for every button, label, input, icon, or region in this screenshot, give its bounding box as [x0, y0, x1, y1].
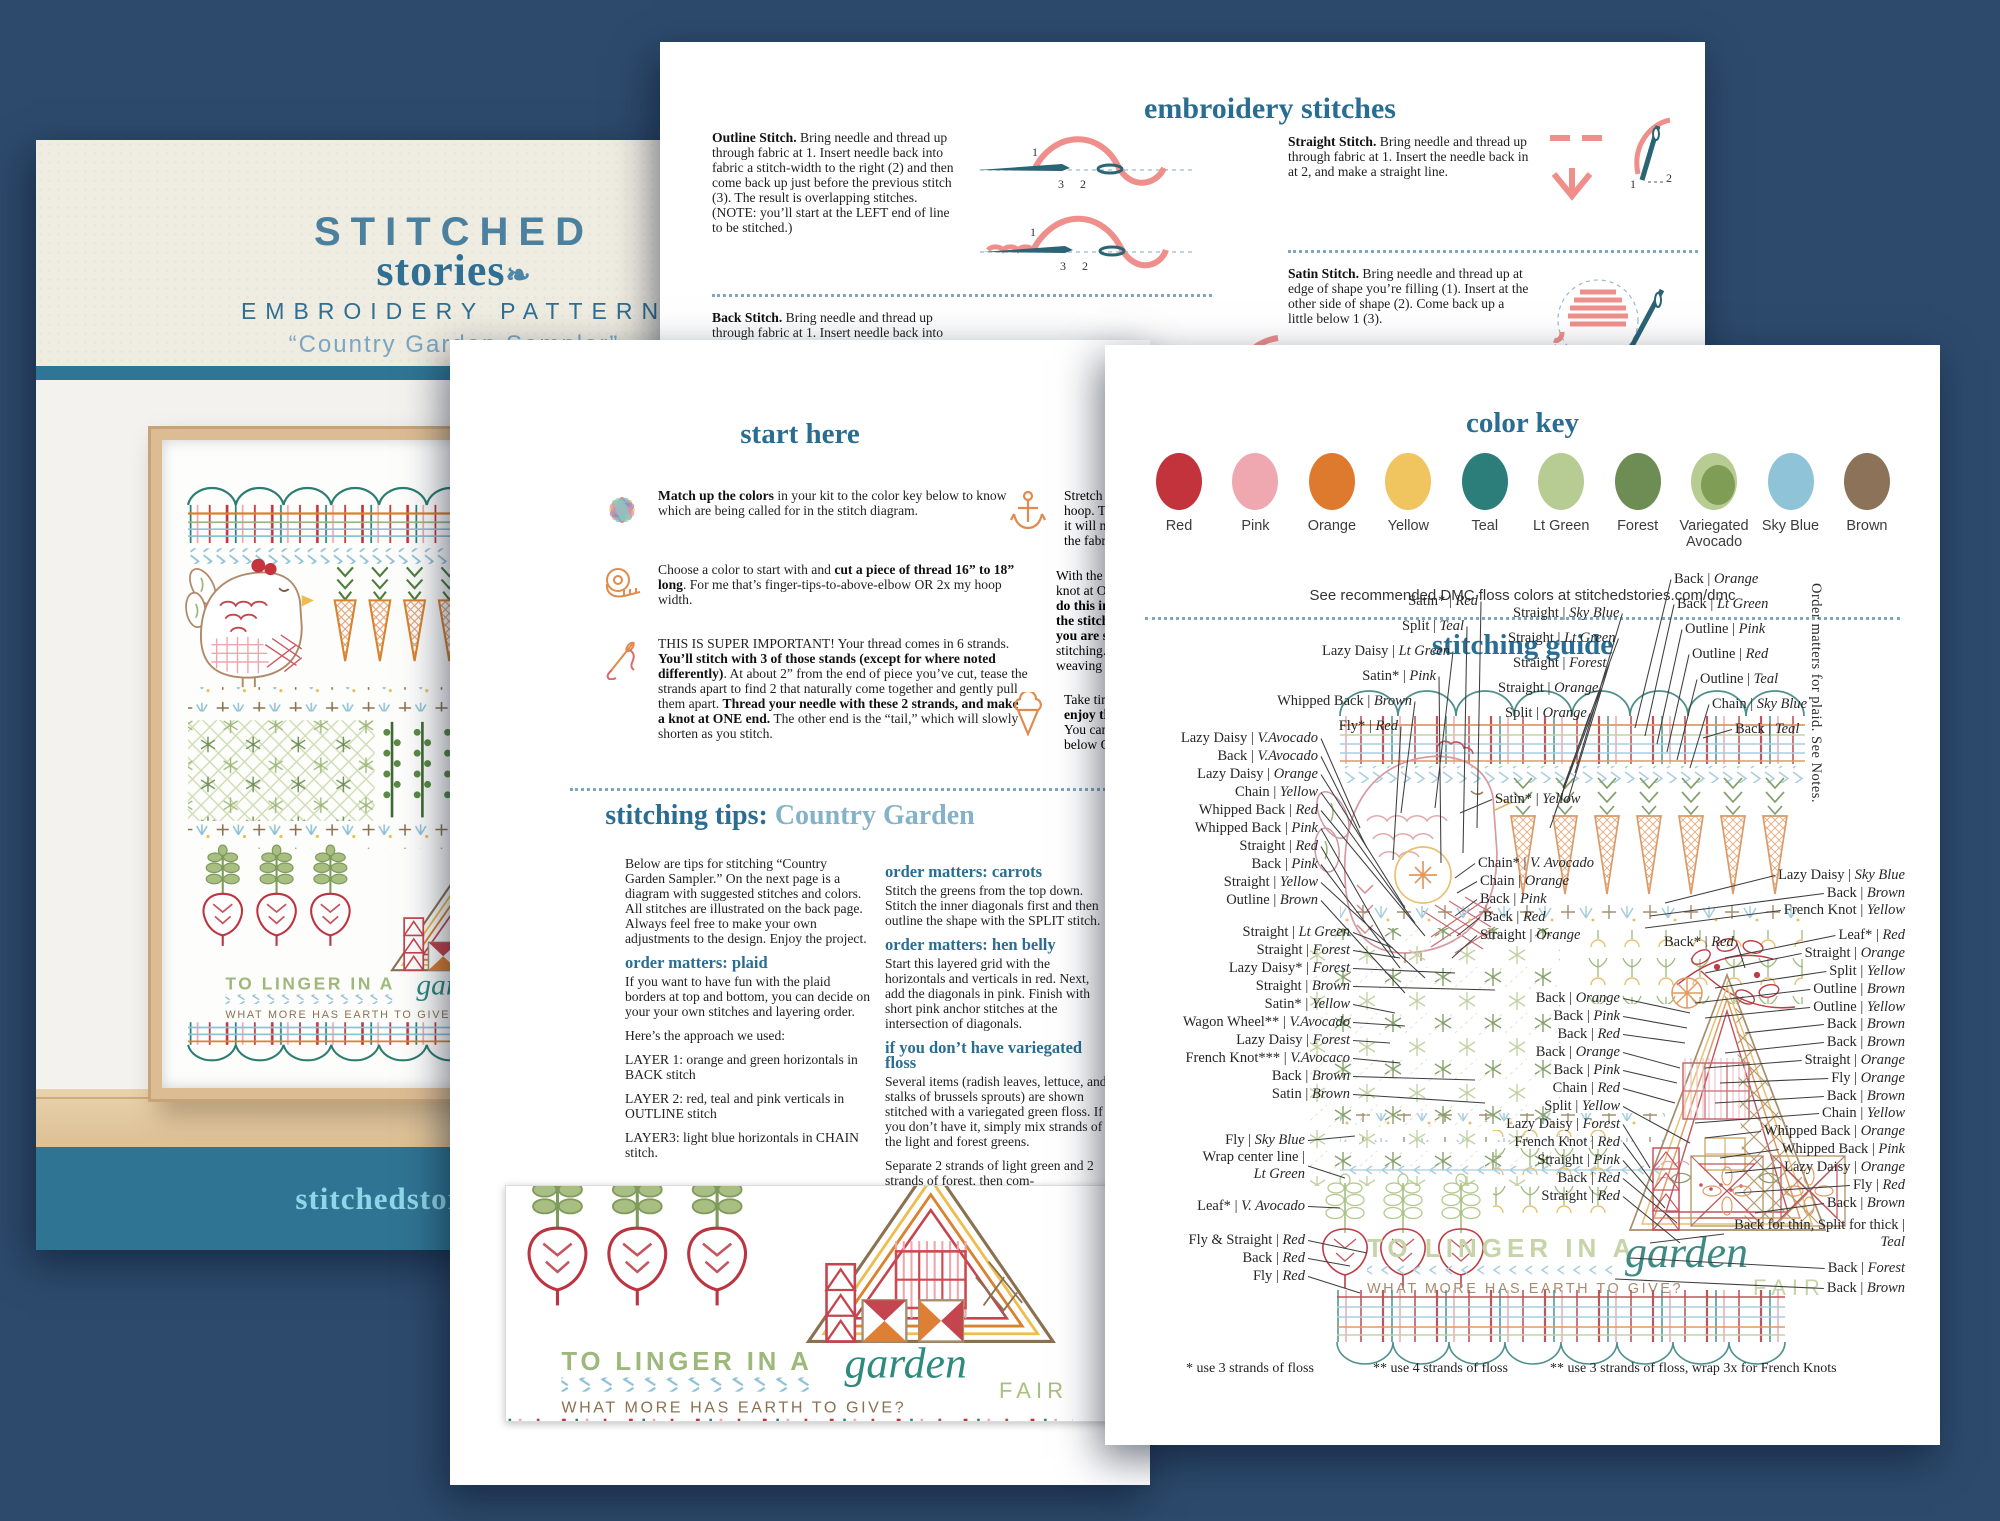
stitch-label: Whipped Back | Orange [1764, 1123, 1905, 1140]
tips-paragraph: Start this layered grid with the horizon… [885, 956, 1109, 1031]
stitch-label: Lazy Daisy | Lt Green [1322, 643, 1450, 660]
stitch-label: Outline | Yellow [1813, 999, 1905, 1016]
stitch-label: Straight | Orange [1805, 945, 1905, 962]
stitch-label: Back | Pink [1251, 856, 1318, 873]
detail-photo [505, 1185, 1112, 1422]
stitch-label: Whipped Back | Red [1199, 802, 1318, 819]
stitch-label: Back for thin, Split for thick | Teal [1727, 1217, 1905, 1251]
stitch-label: Back | Red [1558, 1170, 1621, 1187]
stitch-label: Outline | Brown [1813, 981, 1905, 998]
stitch-label: Wrap center line | Lt Green [1193, 1149, 1305, 1183]
satin-stitch-text: Satin Stitch. Bring needle and thread up… [1288, 266, 1530, 326]
outline-stitch-diagram: 132 132 [970, 124, 1205, 304]
stitch-label: Chain | Sky Blue [1712, 696, 1807, 713]
stitch-label: Wagon Wheel** | V.Avocado [1183, 1014, 1350, 1031]
stitch-label: Straight | Lt Green [1243, 924, 1351, 941]
stitch-label: Straight | Red [1239, 838, 1318, 855]
stitch-label: Lazy Daisy | V.Avocado [1181, 730, 1318, 747]
stitch-label: Back | Lt Green [1677, 596, 1768, 613]
stitch-label: Lazy Daisy | Forest [1236, 1032, 1350, 1049]
stitch-label: Fly | Sky Blue [1225, 1132, 1305, 1149]
start-item-text: THIS IS SUPER IMPORTANT! Your thread com… [658, 636, 1028, 741]
stitch-label: Back | Red [1243, 1250, 1306, 1267]
tips-paragraph: Here’s the approach we used: [625, 1028, 870, 1043]
tips-paragraph: LAYER3: light blue horizontals in CHAIN … [625, 1130, 870, 1160]
product-image: STITCHED stories❧ EMBROIDERY PATTERN “Co… [0, 0, 2000, 1521]
svg-text:3: 3 [1058, 177, 1064, 191]
stitch-label: Leaf* | Red [1838, 927, 1905, 944]
start-here-title: start here [600, 418, 1000, 451]
stitch-label: Back | Orange [1536, 1044, 1620, 1061]
stitch-label: Split | Teal [1402, 618, 1464, 635]
divider [1288, 250, 1698, 253]
stitch-label: Straight | Pink [1537, 1152, 1620, 1169]
footnotes: * use 3 strands of floss** use 4 strands… [1105, 1361, 1940, 1385]
divider [712, 294, 1212, 297]
stitch-label: Back | Brown [1272, 1068, 1350, 1085]
detail-photo-image [506, 1186, 1111, 1421]
start-item-text: Match up the colors in your kit to the c… [658, 488, 1018, 532]
start-item-text: Choose a color to start with and cut a p… [658, 562, 1018, 607]
stitch-label: Outline | Pink [1685, 621, 1765, 638]
stitch-label: Satin* | Pink [1362, 668, 1436, 685]
stitch-label: Whipped Back | Pink [1782, 1141, 1905, 1158]
stitch-label: Straight | Yellow [1224, 874, 1318, 891]
tips-paragraph: LAYER 2: red, teal and pink verticals in… [625, 1091, 870, 1121]
stitch-label: Fly* | Red [1339, 718, 1398, 735]
stitching-tips-title: stitching tips: Country Garden [450, 800, 1130, 832]
stitch-label: Back | Red [1558, 1026, 1621, 1043]
tape-measure-icon [600, 562, 644, 606]
stitch-label: Straight | Lt Green [1508, 630, 1616, 647]
straight-stitch-diagram: 12 [1542, 116, 1692, 236]
stitch-label: Back* | Red [1664, 934, 1734, 951]
stitch-label: Chain | Yellow [1822, 1105, 1905, 1122]
stitch-label: Back | Pink [1553, 1008, 1620, 1025]
cover-header: STITCHED stories❧ EMBROIDERY PATTERN “Co… [36, 140, 696, 366]
stitch-label: Satin* | Red [1408, 593, 1478, 610]
stitch-label: Outline | Red [1692, 646, 1768, 663]
ice-cream-icon [1006, 692, 1050, 736]
stitch-label: Lazy Daisy | Orange [1784, 1159, 1905, 1176]
stitch-label: Satin | Brown [1272, 1086, 1350, 1103]
stitch-label: Fly | Red [1853, 1177, 1905, 1194]
stitch-label: Straight | Red [1541, 1188, 1620, 1205]
stitch-label: Back | Brown [1827, 1034, 1905, 1051]
tips-paragraph: Separate 2 strands of light green and 2 … [885, 1158, 1109, 1188]
brand-top-text: STITCHED [234, 210, 674, 255]
tips-paragraph: Below are tips for stitching “Country Ga… [625, 856, 870, 946]
cover-subtitle: EMBROIDERY PATTERN [234, 298, 674, 325]
color-wheel-icon [600, 488, 644, 532]
stitch-label: Whipped Back | Pink [1195, 820, 1318, 837]
footnote: ** use 3 strands of floss, wrap 3x for F… [1550, 1361, 1837, 1377]
footnote: ** use 4 strands of floss [1373, 1361, 1508, 1377]
svg-text:2: 2 [1082, 259, 1088, 273]
stitch-label: Chain* | V. Avocado [1478, 855, 1594, 872]
anchor-icon [1006, 488, 1050, 532]
tips-subheading: order matters: hen belly [885, 937, 1109, 952]
tips-paragraph: Several items (radish leaves, lettuce, a… [885, 1074, 1109, 1149]
stitches-title: embroidery stitches [1060, 92, 1480, 126]
stitch-label: Straight | Sky Blue [1513, 605, 1619, 622]
stitch-label: Satin* | Yellow [1495, 791, 1580, 808]
stitch-label: Straight | Forest [1513, 655, 1606, 672]
stitch-label: French Knot | Yellow [1784, 902, 1905, 919]
stitch-label: Fly | Red [1253, 1268, 1305, 1285]
stitch-label: Chain | Orange [1480, 873, 1569, 890]
stitch-label: Fly & Straight | Red [1189, 1232, 1306, 1249]
stitch-label: Back | Orange [1674, 571, 1758, 588]
stitch-label: Straight | Forest [1257, 942, 1350, 959]
stitch-label: Lazy Daisy | Sky Blue [1778, 867, 1905, 884]
stitch-label: Straight | Orange [1805, 1052, 1905, 1069]
svg-text:2: 2 [1666, 171, 1672, 185]
tips-left-column: Below are tips for stitching “Country Ga… [625, 856, 870, 1169]
tips-subheading: order matters: carrots [885, 864, 1109, 879]
stitch-label: Back | Brown [1827, 1280, 1905, 1297]
stitch-label: Lazy Daisy | Orange [1197, 766, 1318, 783]
stitch-label: Back | Forest [1828, 1260, 1905, 1277]
tips-subheading: if you don’t have variegated floss [885, 1040, 1109, 1070]
stitch-label: Outline | Teal [1700, 671, 1778, 688]
stitch-label: Outline | Brown [1226, 892, 1318, 909]
stitch-label: Lazy Daisy* | Forest [1229, 960, 1350, 977]
stitch-label: Chain | Red [1553, 1080, 1620, 1097]
stitch-label: Split | Yellow [1544, 1098, 1620, 1115]
stitch-label: Straight | Orange [1498, 680, 1598, 697]
needle-thread-icon [600, 636, 644, 680]
tips-subheading: order matters: plaid [625, 955, 870, 970]
flourish-icon: ❧ [506, 259, 532, 292]
stitch-label: Back | Teal [1735, 721, 1799, 738]
stitch-label: Back | Pink [1480, 891, 1547, 908]
stitch-label: Whipped Back | Brown [1277, 693, 1412, 710]
divider [570, 788, 1130, 791]
tips-paragraph: Stitch the greens from the top down. Sti… [885, 883, 1109, 928]
svg-text:3: 3 [1060, 259, 1066, 273]
stitch-label: French Knot*** | V.Avocaco [1185, 1050, 1350, 1067]
outline-stitch-text: Outline Stitch. Bring needle and thread … [712, 130, 962, 235]
svg-text:2: 2 [1080, 177, 1086, 191]
stitch-label: Lazy Daisy | Forest [1506, 1116, 1620, 1133]
stitch-label: Back | Brown [1827, 1088, 1905, 1105]
stitch-label: Straight | Brown [1256, 978, 1350, 995]
straight-stitch-text: Straight Stitch. Bring needle and thread… [1288, 134, 1530, 179]
svg-text:1: 1 [1030, 225, 1036, 239]
stitch-label: Leaf* | V. Avocado [1197, 1198, 1305, 1215]
stitch-label: Straight | Orange [1480, 927, 1580, 944]
stitch-labels: Satin* | RedSplit | TealLazy Daisy | Lt … [1105, 345, 1940, 1445]
stitch-label: Back | Brown [1827, 1016, 1905, 1033]
tips-paragraph: If you want to have fun with the plaid b… [625, 974, 870, 1019]
start-here-page: start here Match up the colors in your k… [450, 340, 1150, 1485]
stitch-label: Split | Orange [1505, 705, 1587, 722]
tips-right-column: order matters: carrotsStitch the greens … [885, 856, 1109, 1197]
stitch-label: Split | Yellow [1829, 963, 1905, 980]
start-item: THIS IS SUPER IMPORTANT! Your thread com… [600, 636, 1030, 741]
stitch-label: Back | Red [1483, 909, 1546, 926]
stitch-label: Chain | Yellow [1235, 784, 1318, 801]
start-item: Choose a color to start with and cut a p… [600, 562, 1020, 607]
guide-page: color key RedPinkOrangeYellowTealLt Gree… [1105, 345, 1940, 1445]
start-item: Match up the colors in your kit to the c… [600, 488, 1020, 532]
brand-logo: STITCHED stories❧ EMBROIDERY PATTERN “Co… [234, 210, 674, 359]
stitch-label: Back | Brown [1827, 1195, 1905, 1212]
footnote: * use 3 strands of floss [1186, 1361, 1314, 1377]
stitch-label: Back | V.Avocado [1218, 748, 1319, 765]
stitch-label: Fly | Orange [1831, 1070, 1905, 1087]
tips-paragraph: LAYER 1: orange and green horizontals in… [625, 1052, 870, 1082]
stitch-label: Back | Brown [1827, 885, 1905, 902]
svg-text:1: 1 [1630, 177, 1636, 191]
stitch-label: Back | Orange [1536, 990, 1620, 1007]
stitch-label: Satin* | Yellow [1265, 996, 1350, 1013]
stitch-label: Back | Pink [1553, 1062, 1620, 1079]
svg-text:1: 1 [1032, 145, 1038, 159]
stitch-label: French Knot | Red [1514, 1134, 1620, 1151]
